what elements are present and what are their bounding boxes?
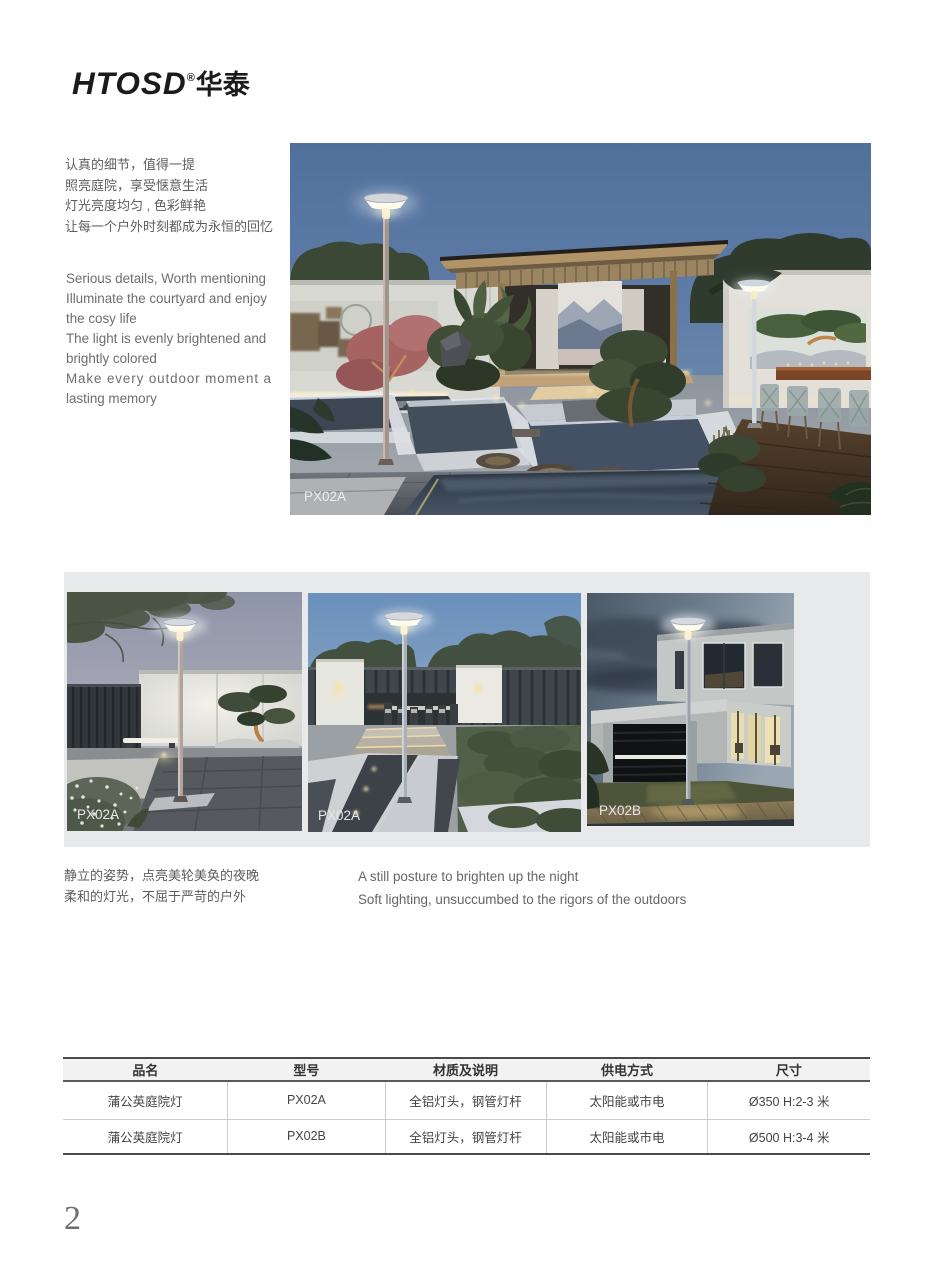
svg-text:PX02A: PX02A — [77, 807, 119, 822]
svg-text:PX02A: PX02A — [318, 808, 360, 823]
svg-text:PX02B: PX02B — [599, 803, 641, 818]
svg-text:PX02A: PX02A — [304, 489, 346, 504]
